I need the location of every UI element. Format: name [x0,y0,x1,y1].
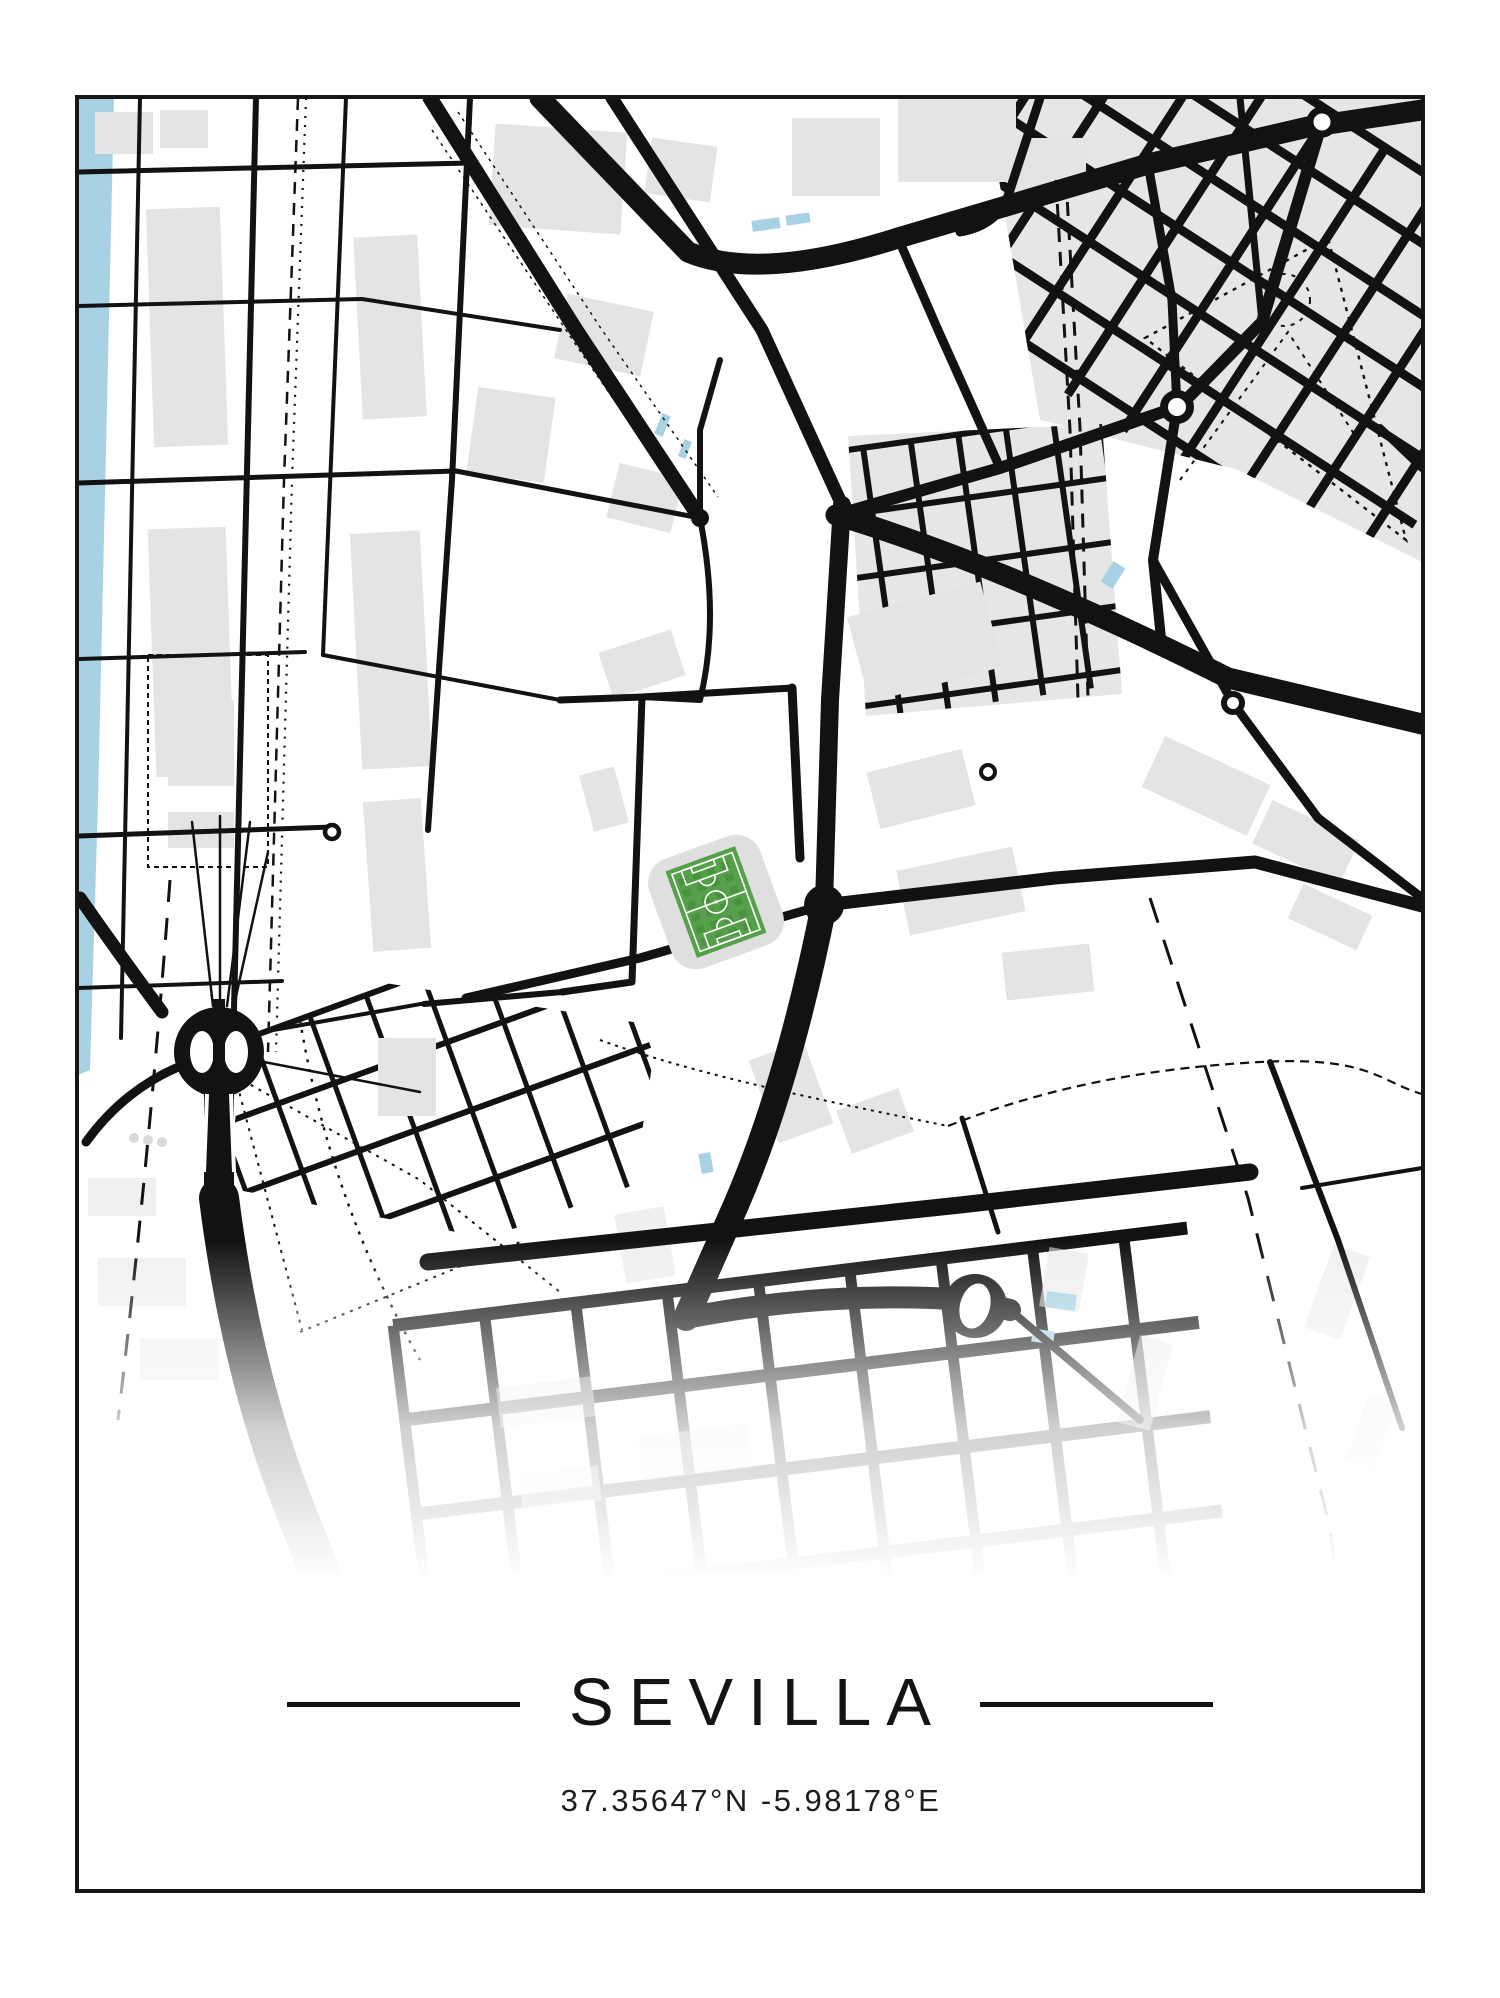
poster-coordinates: 37.35647°N -5.98178°E [0,1783,1500,1819]
poster-title: SEVILLA [0,1664,1500,1741]
poster-frame [75,95,1425,1893]
map-poster: SEVILLA 37.35647°N -5.98178°E [0,0,1500,1998]
map-svg [79,99,1421,1889]
